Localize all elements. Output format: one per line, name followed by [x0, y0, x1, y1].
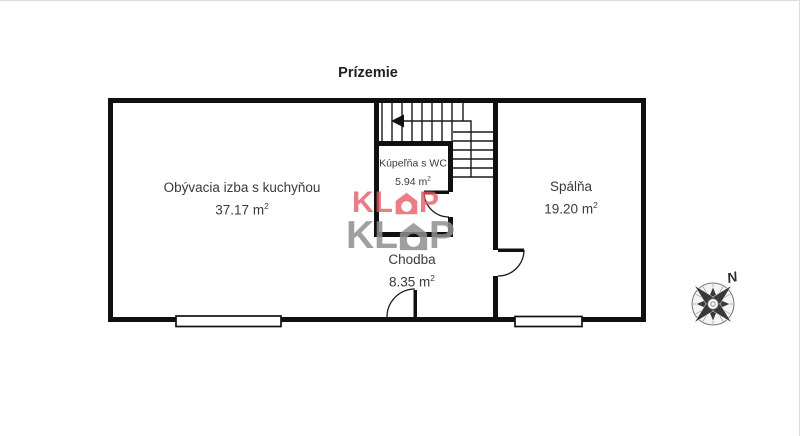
floorplan-page: Prízemie: [0, 0, 800, 436]
room-area: 8.35 m2: [388, 269, 435, 292]
house-o-icon: [399, 222, 428, 251]
room-label-bedroom: Spálňa 19.20 m2: [544, 178, 597, 219]
watermark-klop-gray: KLP: [346, 214, 455, 258]
wall-bedroom-upper: [493, 98, 498, 250]
room-name: Kúpeľňa s WC: [379, 156, 447, 171]
room-area: 37.17 m2: [164, 197, 321, 220]
bedroom-door-swing: [498, 250, 524, 276]
wall-bathroom-top: [374, 141, 453, 146]
watermark-text: KL: [346, 214, 398, 258]
bedroom-door-leaf: [498, 249, 524, 253]
house-o-icon: [395, 192, 418, 215]
entrance-door-swing: [387, 289, 415, 317]
room-label-bathroom: Kúpeľňa s WC 5.94 m2: [379, 156, 447, 190]
wall-bedroom-lower: [493, 276, 498, 322]
compass-rose-icon: [692, 283, 734, 325]
room-area: 19.20 m2: [544, 196, 597, 219]
entrance-door-leaf: [414, 290, 418, 317]
room-label-living: Obývacia izba s kuchyňou 37.17 m2: [164, 179, 321, 220]
wall-bathroom-right-upper: [448, 141, 453, 192]
window-bedroom: [515, 317, 582, 327]
stair-direction-arrow-icon: [391, 115, 404, 128]
wall-outer-top: [108, 98, 646, 103]
room-name: Obývacia izba s kuchyňou: [164, 179, 321, 197]
room-name: Spálňa: [544, 178, 597, 196]
wall-outer-right: [641, 98, 646, 322]
wall-outer-left: [108, 98, 113, 322]
window-living-room: [176, 316, 281, 327]
watermark-text: P: [429, 214, 455, 258]
